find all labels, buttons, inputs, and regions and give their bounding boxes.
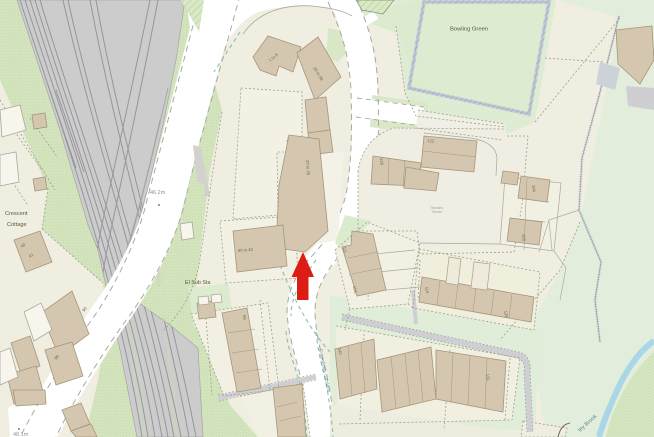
svg-text:46.2m: 46.2m [150, 190, 166, 196]
svg-text:El Sub Sta: El Sub Sta [185, 280, 210, 286]
svg-text:Cottage: Cottage [7, 222, 27, 228]
svg-text:48.1m: 48.1m [13, 432, 29, 437]
svg-text:Crescent: Crescent [5, 211, 28, 217]
svg-text:Bowling Green: Bowling Green [450, 27, 488, 33]
svg-text:128: 128 [379, 158, 385, 166]
svg-text:House: House [432, 210, 442, 214]
svg-text:103: 103 [521, 234, 527, 242]
svg-text:104: 104 [531, 185, 537, 193]
svg-text:122: 122 [427, 138, 435, 144]
